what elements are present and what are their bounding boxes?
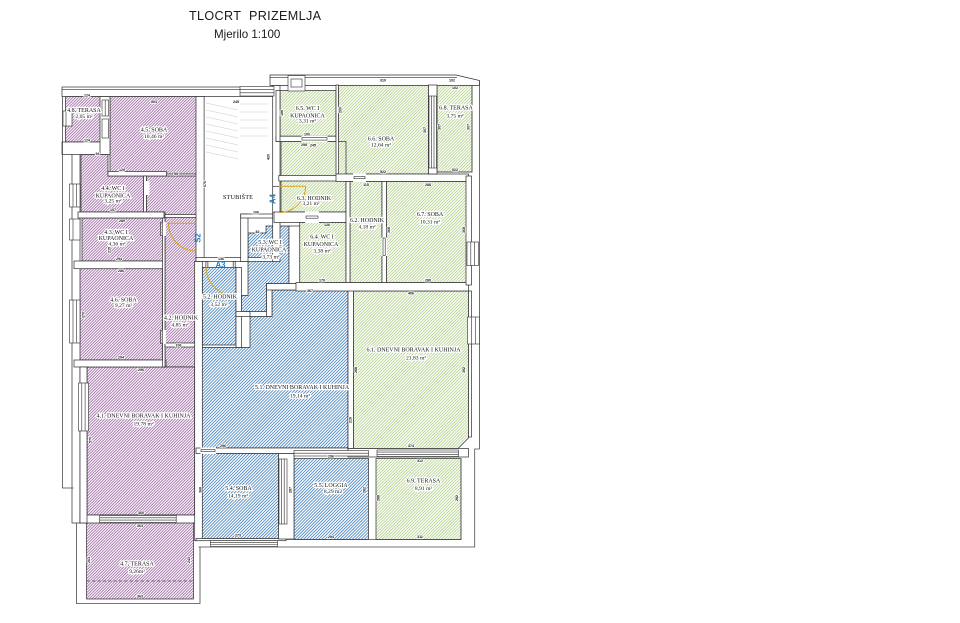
svg-text:5.1. DNEVNI BORAVAK I KUHINJA: 5.1. DNEVNI BORAVAK I KUHINJA bbox=[255, 385, 350, 391]
svg-text:420: 420 bbox=[267, 154, 271, 160]
svg-text:4,18 m²: 4,18 m² bbox=[358, 225, 376, 231]
svg-text:215: 215 bbox=[108, 247, 112, 253]
svg-text:126: 126 bbox=[324, 223, 330, 227]
svg-text:3,75 m²: 3,75 m² bbox=[446, 114, 464, 120]
svg-text:273: 273 bbox=[235, 534, 241, 538]
svg-text:14,19 m²: 14,19 m² bbox=[228, 494, 248, 500]
svg-text:6.8. TERASA: 6.8. TERASA bbox=[439, 106, 473, 112]
svg-text:102: 102 bbox=[449, 79, 455, 83]
svg-text:200: 200 bbox=[339, 107, 343, 113]
svg-text:124: 124 bbox=[84, 139, 90, 143]
svg-text:100: 100 bbox=[304, 132, 310, 136]
svg-text:3,52 m²: 3,52 m² bbox=[210, 302, 228, 308]
svg-text:570: 570 bbox=[89, 437, 93, 443]
svg-text:4.7. TERASA: 4.7. TERASA bbox=[120, 562, 154, 568]
svg-text:9,27 m²: 9,27 m² bbox=[115, 303, 133, 309]
svg-text:503: 503 bbox=[151, 100, 157, 104]
svg-text:219: 219 bbox=[349, 417, 353, 423]
svg-text:6.7. SOBA: 6.7. SOBA bbox=[417, 212, 444, 218]
svg-text:82: 82 bbox=[256, 230, 260, 234]
svg-text:287: 287 bbox=[289, 487, 293, 493]
svg-text:311: 311 bbox=[417, 535, 423, 539]
svg-text:KUPAONICA: KUPAONICA bbox=[252, 248, 287, 254]
svg-text:296: 296 bbox=[138, 368, 144, 372]
svg-text:106: 106 bbox=[176, 343, 182, 347]
svg-text:4,85 m²: 4,85 m² bbox=[171, 323, 189, 329]
svg-text:3,25 m²: 3,25 m² bbox=[104, 199, 122, 205]
svg-text:374: 374 bbox=[408, 444, 414, 448]
svg-text:280: 280 bbox=[425, 279, 431, 283]
svg-text:368: 368 bbox=[199, 487, 203, 493]
svg-text:94: 94 bbox=[96, 152, 100, 156]
svg-text:286: 286 bbox=[118, 269, 124, 273]
svg-text:296: 296 bbox=[328, 455, 334, 459]
svg-text:296: 296 bbox=[220, 444, 226, 448]
svg-text:307: 307 bbox=[423, 127, 427, 133]
svg-text:4.5. SOBA: 4.5. SOBA bbox=[141, 128, 168, 134]
svg-text:6.1. DNEVNI BORAVAK I KUHINJA: 6.1. DNEVNI BORAVAK I KUHINJA bbox=[366, 348, 461, 354]
svg-text:95: 95 bbox=[174, 172, 178, 176]
svg-text:294: 294 bbox=[116, 257, 122, 261]
svg-text:4.4. WC I: 4.4. WC I bbox=[101, 186, 125, 192]
svg-text:307: 307 bbox=[438, 124, 442, 130]
svg-text:A3: A3 bbox=[216, 260, 227, 269]
svg-text:170: 170 bbox=[319, 279, 325, 283]
svg-text:307: 307 bbox=[467, 124, 471, 130]
svg-text:A4: A4 bbox=[269, 193, 278, 204]
svg-text:6.9. TERASA: 6.9. TERASA bbox=[407, 479, 441, 485]
svg-text:298: 298 bbox=[301, 143, 307, 147]
svg-text:282: 282 bbox=[455, 495, 459, 501]
svg-text:3,21 m²: 3,21 m² bbox=[302, 201, 320, 207]
svg-text:312: 312 bbox=[417, 459, 423, 463]
svg-text:288: 288 bbox=[377, 495, 381, 501]
svg-text:245: 245 bbox=[233, 100, 239, 104]
svg-text:6.4. WC I: 6.4. WC I bbox=[310, 235, 334, 241]
svg-text:8,91 m²: 8,91 m² bbox=[415, 486, 433, 492]
svg-text:10,31 m²: 10,31 m² bbox=[420, 220, 440, 226]
svg-text:310: 310 bbox=[380, 79, 386, 83]
svg-text:289: 289 bbox=[119, 219, 125, 223]
svg-text:263: 263 bbox=[87, 557, 91, 563]
svg-text:8,29 m2: 8,29 m2 bbox=[324, 489, 343, 495]
svg-text:102: 102 bbox=[452, 86, 458, 90]
svg-text:288: 288 bbox=[425, 183, 431, 187]
svg-text:188: 188 bbox=[280, 110, 284, 116]
svg-text:288: 288 bbox=[354, 367, 358, 373]
svg-text:STUBIŠTE: STUBIŠTE bbox=[223, 193, 253, 201]
svg-text:3,38 m²: 3,38 m² bbox=[313, 248, 331, 254]
svg-text:10,46 m²: 10,46 m² bbox=[144, 134, 164, 140]
svg-text:392: 392 bbox=[462, 367, 466, 373]
svg-text:2,05 m²: 2,05 m² bbox=[75, 114, 93, 120]
svg-text:360: 360 bbox=[138, 511, 144, 515]
svg-text:406: 406 bbox=[408, 292, 414, 296]
svg-text:282: 282 bbox=[363, 487, 367, 493]
svg-text:5.4. SOBA: 5.4. SOBA bbox=[225, 486, 252, 492]
svg-text:5.2. HODNIK: 5.2. HODNIK bbox=[203, 295, 238, 301]
svg-text:12,64 m²: 12,64 m² bbox=[371, 142, 391, 148]
svg-text:4,36 m²: 4,36 m² bbox=[108, 242, 126, 248]
svg-text:19,78 m²: 19,78 m² bbox=[133, 422, 153, 428]
svg-text:270: 270 bbox=[82, 312, 86, 318]
svg-text:4.2. HODNIK: 4.2. HODNIK bbox=[164, 316, 199, 322]
svg-text:3,31 m²: 3,31 m² bbox=[299, 118, 317, 124]
svg-text:6.5. WC I: 6.5. WC I bbox=[296, 106, 320, 112]
svg-text:6.2. HODNIK: 6.2. HODNIK bbox=[350, 218, 385, 224]
svg-text:19,14 m²: 19,14 m² bbox=[290, 393, 310, 399]
svg-text:363: 363 bbox=[137, 595, 143, 599]
svg-text:367: 367 bbox=[307, 289, 313, 293]
svg-text:21,83 m²: 21,83 m² bbox=[406, 356, 426, 362]
svg-text:368: 368 bbox=[387, 227, 391, 233]
svg-text:S2: S2 bbox=[194, 233, 203, 243]
svg-text:243: 243 bbox=[187, 557, 191, 563]
svg-text:KUPAONICA: KUPAONICA bbox=[304, 242, 339, 248]
svg-text:676: 676 bbox=[203, 181, 207, 187]
svg-text:294: 294 bbox=[118, 356, 124, 360]
svg-text:363: 363 bbox=[137, 524, 143, 528]
svg-text:124: 124 bbox=[84, 93, 90, 97]
svg-text:4.1. DNEVNI BORAVAK I KUHINJA: 4.1. DNEVNI BORAVAK I KUHINJA bbox=[96, 414, 191, 420]
svg-text:368: 368 bbox=[462, 227, 466, 233]
svg-text:115: 115 bbox=[363, 183, 369, 187]
svg-text:9,26m²: 9,26m² bbox=[129, 569, 145, 575]
svg-text:245: 245 bbox=[310, 144, 316, 148]
svg-text:522: 522 bbox=[452, 168, 458, 172]
svg-text:522: 522 bbox=[380, 170, 386, 174]
svg-text:3,73 m²: 3,73 m² bbox=[262, 255, 280, 261]
svg-text:5.3. WC I: 5.3. WC I bbox=[258, 240, 282, 246]
svg-text:294: 294 bbox=[328, 535, 334, 539]
svg-text:129: 129 bbox=[119, 168, 125, 172]
svg-text:106: 106 bbox=[253, 211, 259, 215]
svg-text:107: 107 bbox=[110, 208, 116, 212]
